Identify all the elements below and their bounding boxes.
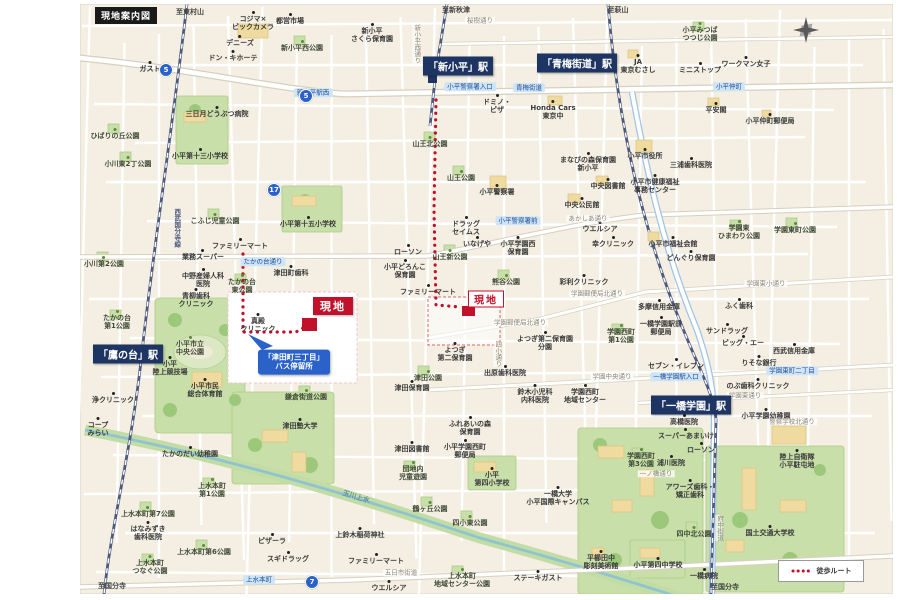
bus-stop-callout-line2: バス停留所 <box>264 362 324 371</box>
park-label: たかの台 東公園 <box>228 274 256 294</box>
poi-label: 彩利クリニック <box>560 274 609 286</box>
road-section-label: 一橋学園駅入口 <box>650 372 702 381</box>
poi-label: 小平どろんこ 保育園 <box>384 259 426 279</box>
poi-label: 出原歯科医院 <box>484 365 526 377</box>
poi-label: ドミノ・ ピザ <box>483 94 511 114</box>
poi-label: セブン・イレブン <box>648 358 704 370</box>
poi-label: 小平学園西町 郵便局 <box>444 439 486 459</box>
road-section-label: 小平警察署前 <box>496 216 541 225</box>
park-label: 団地内 児童遊園 <box>399 461 427 481</box>
poi-label: 浄クリニック <box>92 392 134 404</box>
poi-label: 津田図書館 <box>395 441 430 453</box>
road-name-label: 学園中央通り <box>591 373 634 380</box>
road-name-label: 新小平西通り <box>412 25 419 64</box>
park-label: 上水本町第7公園 <box>121 506 175 518</box>
poi-label: 陸上自衛隊 小平駐屯地 <box>780 449 815 469</box>
poi-label: 幸クリニック <box>592 236 634 248</box>
park-label: 熊谷公園 <box>492 274 520 286</box>
map-title-chip: 現地案内図 <box>95 7 157 24</box>
poi-label: ピザーラ <box>258 533 286 545</box>
poi-label: よつぎ第二保育園 分園 <box>517 331 573 351</box>
road-name-label: 府中街道 <box>715 515 722 541</box>
poi-label: 平櫛田中 彫刻美術館 <box>584 550 619 570</box>
park-label: こふじ児童公園 <box>191 213 240 225</box>
poi-label: 小平市民 総合体育館 <box>188 378 223 398</box>
poi-label: 上鈴木稲荷神社 <box>336 527 385 539</box>
park-label: 新小平西公園 <box>281 40 323 52</box>
poi-label: 新小平 さくら保育園 <box>351 23 393 43</box>
route-number-badge: 7 <box>305 575 319 589</box>
poi-label: 小平市健康福祉 事務センター <box>631 174 680 194</box>
map-labels-layer: ガストコジマ× ビックカメラ都営市場新小平西公園デニーズドン・キホーテ新小平 さ… <box>0 0 900 600</box>
walk-route-legend-label: 徒歩ルート <box>817 566 852 576</box>
road-name-label: 五日市街道 <box>383 569 420 576</box>
poi-label: スギドラッグ <box>267 551 309 563</box>
school-label: 津田塾大学 <box>283 418 318 430</box>
road-name-label: 学園郵便局北通り <box>492 319 548 326</box>
direction-label: 至新秋津 <box>442 6 470 14</box>
route-number-badge: 5 <box>159 63 173 77</box>
bus-stop-callout-line1: 「津田町三丁目」 <box>264 353 324 362</box>
road-name-label: 学園東小通り <box>745 280 788 287</box>
road-name-label: 学園東通り <box>727 392 764 399</box>
station-label: 「青梅街道」駅 <box>537 54 617 73</box>
park-label: 学園西町 第3公園 <box>627 448 655 468</box>
road-name-label: 桜樹通り <box>465 17 495 24</box>
poi-label: まなびの森保育園 新小平 <box>560 152 616 172</box>
railway-name-label: 西武国分寺線 <box>172 209 179 248</box>
poi-label: ローソン <box>687 442 715 454</box>
poi-label: スーパーあまいけ <box>658 428 714 440</box>
direction-label: 至東村山 <box>176 8 204 16</box>
park-label: 四小東公園 <box>453 515 488 527</box>
park-label: 山王公園 <box>447 170 475 182</box>
poi-label: デニーズ <box>226 35 254 47</box>
park-label: 上水本町 つなぐ公園 <box>133 555 168 575</box>
poi-label: 学園西町 地域センター <box>564 384 606 404</box>
poi-label: 中央公民館 <box>565 197 600 209</box>
poi-label: ガスト <box>140 61 161 73</box>
poi-label: りそな銀行 <box>742 355 777 367</box>
poi-label: Honda Cars 東京中 <box>530 100 575 120</box>
route-number-badge: 17 <box>267 183 281 197</box>
route-number-badge: 5 <box>299 89 313 103</box>
direction-label: 至国分寺 <box>98 582 126 590</box>
poi-label: のぶ歯科クリニック <box>727 378 790 390</box>
poi-label: 業務スーパー <box>182 249 224 261</box>
road-section-label: 上水本町 <box>243 575 275 584</box>
poi-label: 津田町歯科 <box>274 265 309 277</box>
site-1-label: 現地 <box>313 297 353 315</box>
poi-label: ビッグ・エー <box>722 335 764 347</box>
poi-label: 中央図書館 <box>591 178 626 190</box>
park-label: たかの台 第1公園 <box>103 310 131 330</box>
poi-label: 青柳歯科 クリニック <box>179 288 214 308</box>
road-name-label: あかしあ通り <box>567 215 610 222</box>
park-label: 小川第2公園 <box>84 256 124 268</box>
road-name-label: 警察学校北通り <box>767 418 817 425</box>
station-label: 「鷹の台」駅 <box>93 345 163 364</box>
poi-label: はなみずき 歯科医院 <box>131 521 166 541</box>
canal-name-label: 玉川上水 <box>341 489 370 505</box>
poi-label: 多摩信用金庫 <box>638 299 680 311</box>
poi-label: アワーズ歯科・ 矯正歯科 <box>666 479 715 499</box>
poi-label: ファミリーマート <box>348 553 404 565</box>
poi-label: ファミリーマート <box>212 238 268 250</box>
poi-label: ワークマン女子 <box>722 56 771 68</box>
poi-label: コープ みらい <box>88 417 109 437</box>
map-canvas: ガストコジマ× ビックカメラ都営市場新小平西公園デニーズドン・キホーテ新小平 さ… <box>0 0 900 600</box>
school-label: 一橋大学 小平国際キャンパス <box>527 486 590 506</box>
park-label: 小平市立 中央公園 <box>176 336 204 356</box>
poi-label: 平安閣 <box>706 102 727 114</box>
poi-label: ファミリーマート <box>400 284 456 296</box>
walk-route-legend-sample <box>791 568 813 574</box>
park-label: 鶴ヶ丘公園 <box>413 501 448 513</box>
poi-label: よつぎ 第二保育園 <box>438 342 473 362</box>
park-label: 学園東 ひまわり公園 <box>718 220 760 240</box>
poi-label: 小平学園西 保育園 <box>501 236 536 256</box>
school-label: 小平 第四小学校 <box>475 467 510 487</box>
poi-label: ステーキガスト <box>514 570 563 582</box>
school-label: 国土交通大学校 <box>746 525 795 537</box>
park-label: 小川東2丁公園 <box>105 156 152 168</box>
road-name-label: 一ノ橋通り <box>638 470 675 477</box>
bus-stop-callout: 「津田町三丁目」 バス停留所 <box>258 350 330 375</box>
park-label: 上水本町 第1公園 <box>198 478 226 498</box>
poi-label: 浦川医院 <box>657 455 685 467</box>
park-label: ひばりの丘公園 <box>91 128 140 140</box>
poi-label: どんぐり保育園 <box>667 250 716 262</box>
road-section-label: 小平仲町 <box>713 82 745 91</box>
poi-label: ミニストップ <box>679 62 721 74</box>
road-name-label: 四小通り <box>493 341 500 367</box>
poi-label: 真殿 クリニック <box>241 313 276 333</box>
direction-label: 至国分寺 <box>711 583 739 591</box>
poi-label: 小平市福祉会館 <box>649 236 698 248</box>
school-label: 小平第十三小学校 <box>172 148 228 160</box>
site-2-label: 現地 <box>468 291 504 308</box>
park-label: 山王新公園 <box>433 249 468 261</box>
poi-label: 小平仲町郵便局 <box>746 113 795 125</box>
poi-label: 三日月どうぶつ病院 <box>186 106 249 118</box>
road-section-label: 学園東町二丁目 <box>766 366 818 375</box>
poi-label: 小平市役所 <box>628 148 663 160</box>
poi-label: 都営市場 <box>276 13 304 25</box>
school-label: 小平第十五小学校 <box>280 216 336 228</box>
poi-label: 鈴木小児科 内科医院 <box>518 384 553 404</box>
poi-label: ふく歯科 <box>725 298 753 310</box>
poi-label: 小平学園幼稚園 <box>742 408 791 420</box>
park-label: 鎌倉街道公園 <box>285 389 327 401</box>
park-label: 学園西町 第1公園 <box>607 324 635 344</box>
poi-label: 一橋病院 <box>690 568 718 580</box>
station-label: 「新小平」駅 <box>423 57 493 76</box>
poi-label: ウエルシア <box>372 580 407 592</box>
direction-label: 至萩山 <box>608 6 629 14</box>
school-label: 小平第四中学校 <box>634 557 683 569</box>
poi-label: ふれあいの森 保育園 <box>449 416 491 436</box>
park-label: 小平みつば つつじ公園 <box>683 22 718 42</box>
poi-label: ドラッグ セイムス <box>452 216 480 236</box>
poi-label: ローソン <box>394 244 422 256</box>
park-label: 学園東町公園 <box>774 222 816 234</box>
poi-label: 中野産婦人科 医院 <box>182 268 224 288</box>
poi-label: ウエルシア <box>583 221 618 233</box>
poi-label: 三浦歯科医院 <box>670 157 712 169</box>
road-name-label: 学園郵便局北通り <box>569 290 625 297</box>
poi-label: いなげや <box>463 236 491 248</box>
poi-label: 小平警察署 <box>480 184 515 196</box>
park-label: 四中北公園 <box>677 526 712 538</box>
station-label: 「一橋学園」駅 <box>651 396 731 415</box>
park-label: 上水本町第6公園 <box>177 544 231 556</box>
road-section-label: 小平警察署入口 <box>444 82 496 91</box>
walk-route-legend: 徒歩ルート <box>778 560 864 582</box>
park-label: 津田公園 <box>414 370 442 382</box>
poi-label: たかのだい幼稚園 <box>162 446 218 458</box>
poi-label: 津田保育園 <box>395 380 430 392</box>
road-section-label: たかの台通り <box>241 257 286 266</box>
poi-label: 高橋医院 <box>670 414 698 426</box>
poi-label: コジマ× ビックカメラ <box>232 11 274 31</box>
road-section-label: 青梅街道 <box>513 83 545 92</box>
poi-label: ドン・キホーテ <box>209 50 258 62</box>
park-label: 山王北公園 <box>413 136 448 148</box>
poi-label: 西武信用金庫 <box>773 343 815 355</box>
poi-label: 一橋学園駅前 郵便局 <box>640 316 682 336</box>
poi-label: サンドラッグ <box>706 323 748 335</box>
park-label: 上水本町 地域センター公園 <box>434 568 490 588</box>
poi-label: JA 東京むさし <box>621 54 656 74</box>
